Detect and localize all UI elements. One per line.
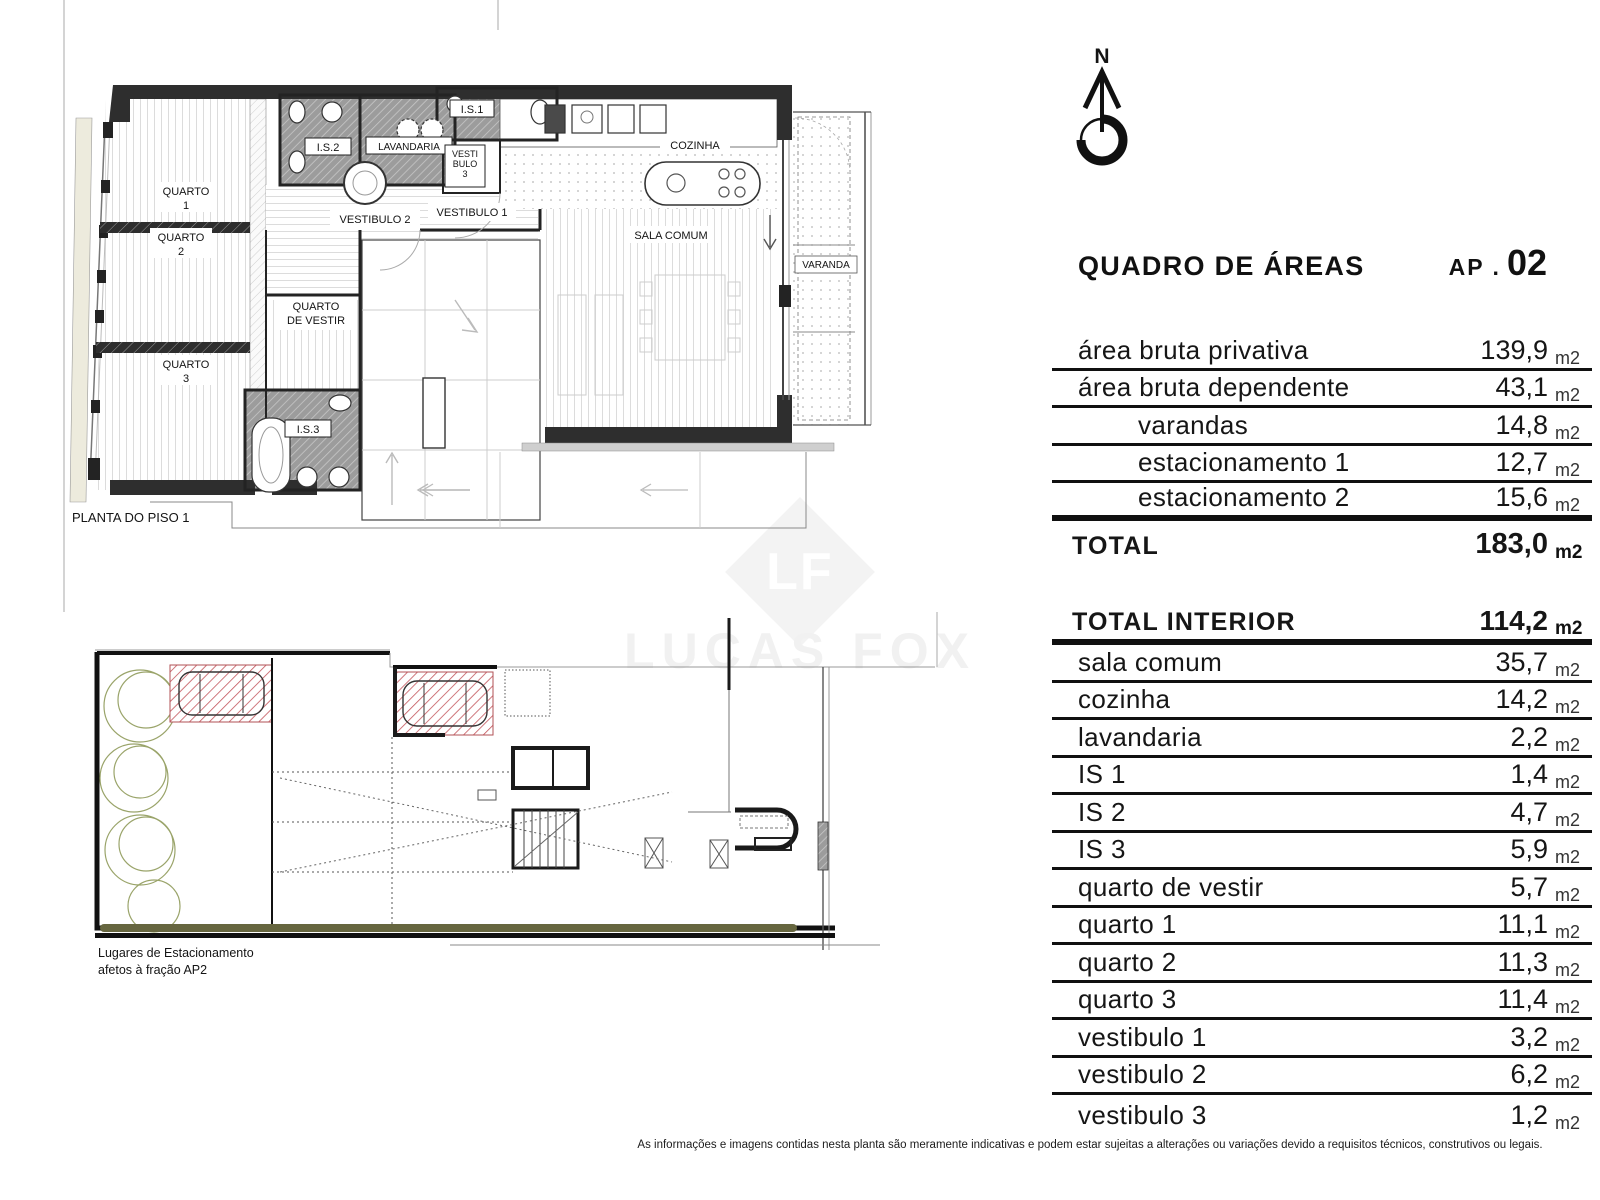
area-row: IS 3 5,9 m2 — [1052, 833, 1592, 871]
gross-areas-table: área bruta privativa 139,9 m2 área bruta… — [1052, 333, 1592, 563]
north-arrow: N — [1040, 20, 1170, 180]
total-row: TOTAL 183,0 m2 — [1052, 521, 1592, 563]
apartment-number: 02 — [1507, 242, 1547, 284]
label-quarto-de-vestir: QUARTO — [293, 301, 340, 313]
parking-caption-line2: afetos à fração AP2 — [98, 963, 207, 977]
svg-text:DE VESTIR: DE VESTIR — [287, 315, 345, 327]
label-vestibulo3: VESTI — [452, 149, 478, 159]
area-row: varandas 14,8 m2 — [1052, 408, 1592, 446]
area-row: IS 2 4,7 m2 — [1052, 795, 1592, 833]
area-row: estacionamento 1 12,7 m2 — [1052, 446, 1592, 484]
label-sala-comum: SALA COMUM — [634, 230, 707, 242]
svg-text:1: 1 — [183, 200, 189, 212]
area-row: vestibulo 3 1,2 m2 — [1052, 1095, 1592, 1133]
plan-sheet: LF LUCAS FOX — [0, 0, 1600, 1200]
parking-spot-1 — [170, 665, 272, 722]
label-quarto3: QUARTO — [163, 359, 210, 371]
label-vestibulo2: VESTIBULO 2 — [340, 214, 411, 226]
apartment-badge: AP . 02 — [1449, 242, 1547, 284]
area-row: lavandaria 2,2 m2 — [1052, 720, 1592, 758]
label-is3: I.S.3 — [297, 424, 320, 436]
label-lavandaria: LAVANDARIA — [378, 142, 440, 153]
disclaimer-text: As informações e imagens contidas nesta … — [580, 1139, 1600, 1151]
interior-header-row: TOTAL INTERIOR 114,2 m2 — [1052, 601, 1592, 645]
floor-plan-drawing: QUARTO 1 QUARTO 2 QUARTO 3 I.S.2 LAVANDA… — [0, 0, 1040, 1000]
interior-areas-table: TOTAL INTERIOR 114,2 m2 sala comum 35,7 … — [1052, 601, 1592, 1133]
area-row: área bruta privativa 139,9 m2 — [1052, 333, 1592, 371]
area-row: quarto 1 11,1 m2 — [1052, 908, 1592, 946]
area-row: cozinha 14,2 m2 — [1052, 683, 1592, 721]
label-cozinha: COZINHA — [670, 140, 720, 152]
area-row: IS 1 1,4 m2 — [1052, 758, 1592, 796]
svg-text:2: 2 — [178, 246, 184, 258]
svg-text:3: 3 — [462, 169, 467, 179]
area-row: quarto 2 11,3 m2 — [1052, 945, 1592, 983]
areas-panel-title: QUADRO DE ÁREAS — [1078, 251, 1365, 282]
plan1-caption: PLANTA DO PISO 1 — [72, 510, 190, 525]
stairwell — [362, 240, 540, 520]
parking-spot-2 — [395, 672, 493, 735]
label-is2: I.S.2 — [317, 142, 340, 154]
svg-text:BULO: BULO — [453, 159, 478, 169]
label-quarto2: QUARTO — [158, 232, 205, 244]
label-vestibulo1: VESTIBULO 1 — [437, 207, 508, 219]
area-row: quarto 3 11,4 m2 — [1052, 983, 1592, 1021]
apartment-prefix: AP . — [1449, 254, 1501, 281]
area-row: vestibulo 2 6,2 m2 — [1052, 1058, 1592, 1096]
ramp — [688, 810, 796, 850]
label-quarto1: QUARTO — [163, 186, 210, 198]
area-row: sala comum 35,7 m2 — [1052, 645, 1592, 683]
trees — [100, 670, 180, 932]
area-row: vestibulo 1 3,2 m2 — [1052, 1020, 1592, 1058]
north-letter: N — [1094, 45, 1109, 68]
area-row: quarto de vestir 5,7 m2 — [1052, 870, 1592, 908]
area-row: área bruta dependente 43,1 m2 — [1052, 371, 1592, 409]
label-is1: I.S.1 — [461, 104, 484, 116]
svg-text:3: 3 — [183, 373, 189, 385]
area-row: estacionamento 2 15,6 m2 — [1052, 483, 1592, 521]
parking-caption-line1: Lugares de Estacionamento — [98, 946, 254, 960]
label-varanda: VARANDA — [802, 260, 850, 271]
parking-plan — [95, 618, 935, 950]
